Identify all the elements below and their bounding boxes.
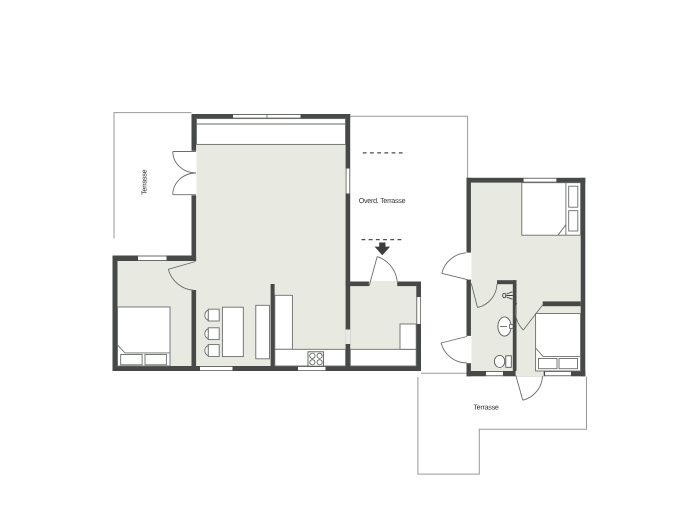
svg-text:Overd. Terrasse: Overd. Terrasse	[359, 197, 406, 205]
svg-text:Terrasse: Terrasse	[473, 404, 499, 412]
svg-text:Terrasse: Terrasse	[141, 169, 149, 195]
